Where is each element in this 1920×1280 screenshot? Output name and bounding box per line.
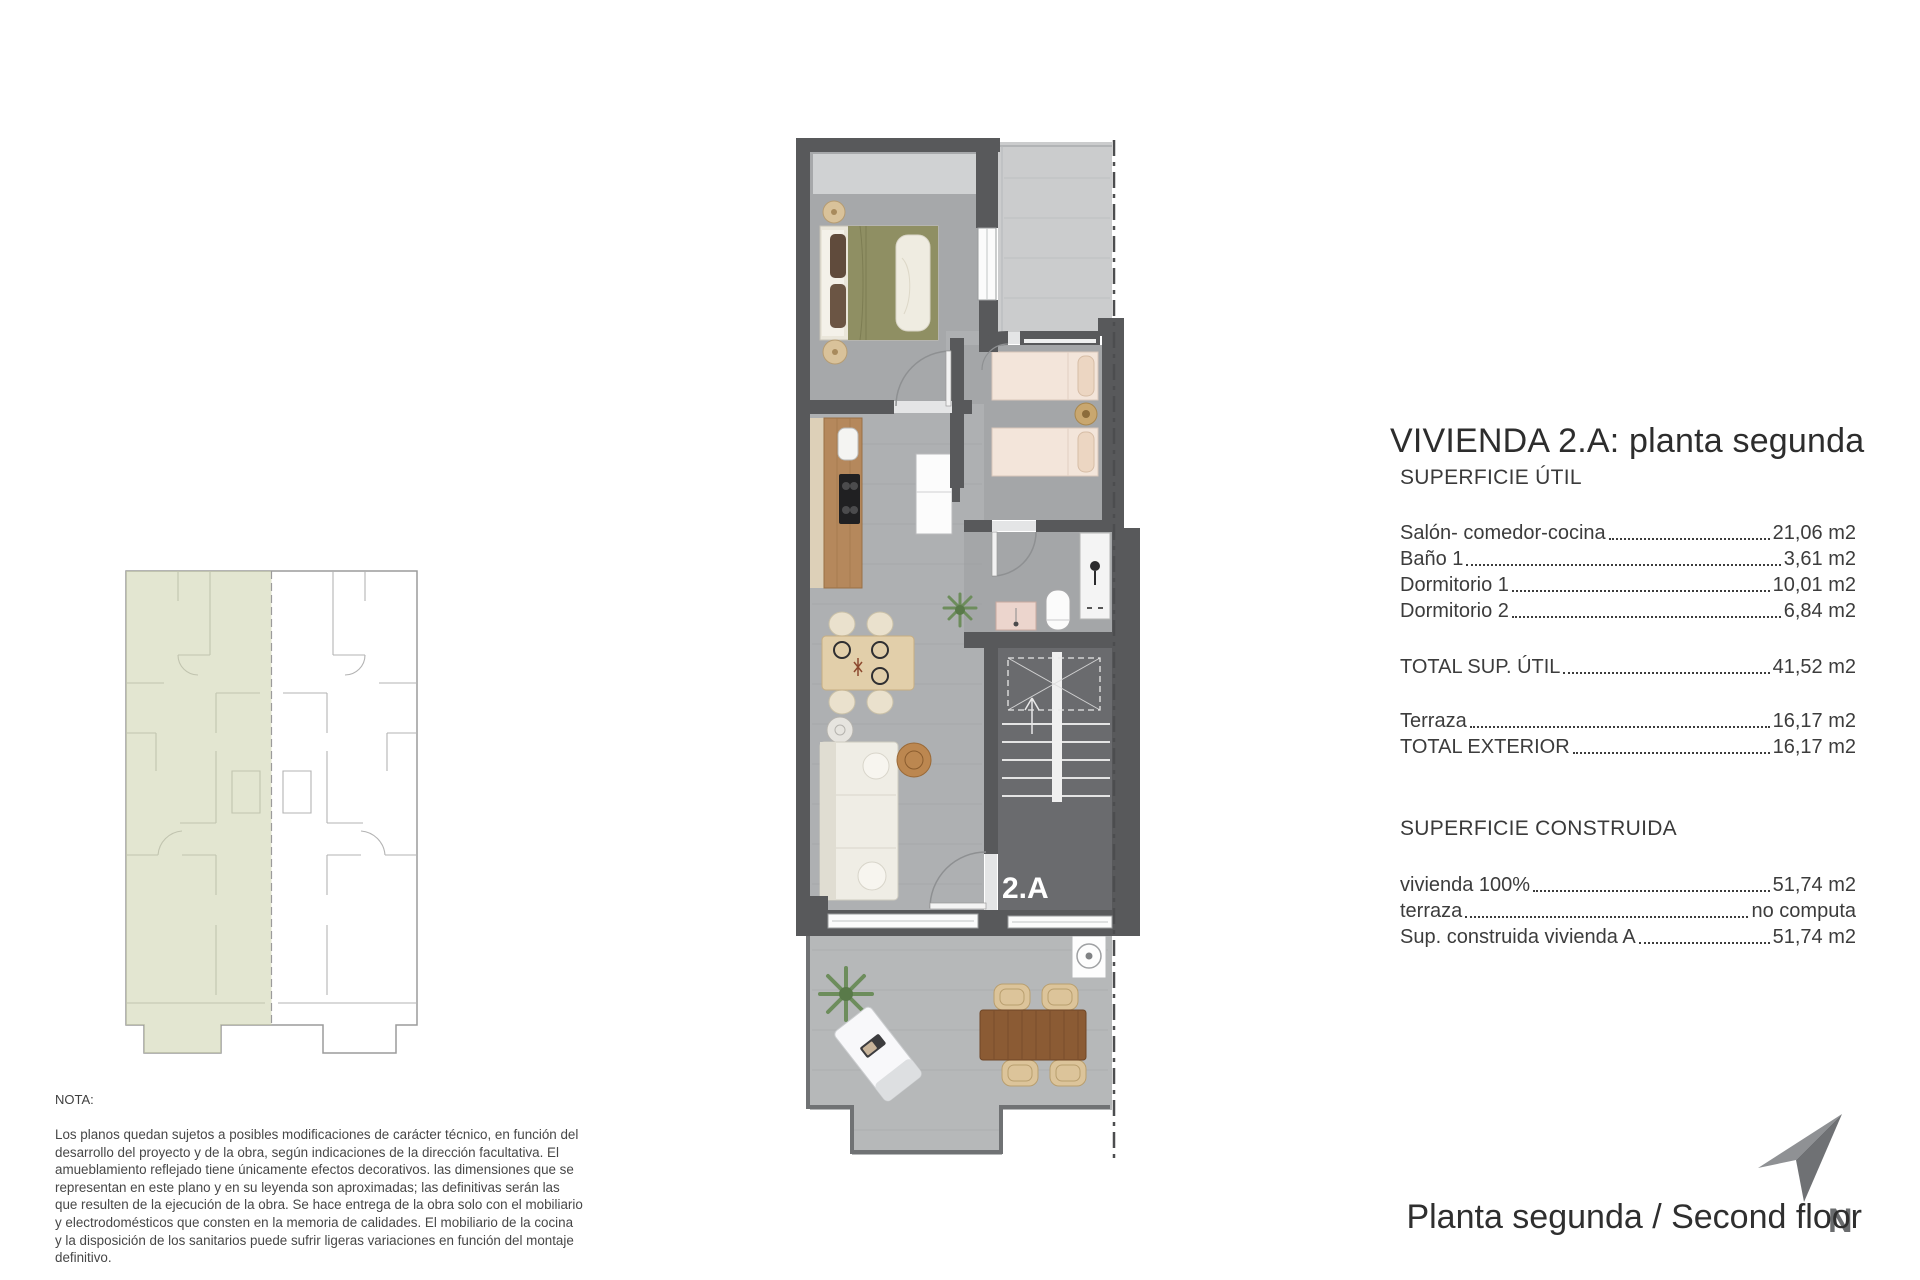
area-row-salon: Salón- comedor-cocina 21,06 m2 [1400,519,1856,545]
kitchen-counter [810,418,862,588]
area-row-value: 51,74 m2 [1773,874,1856,897]
area-row-label: Dormitorio 2 [1400,600,1509,623]
unit-label: 2.A [1002,872,1049,905]
dotted-leader [1465,916,1748,918]
area-row-label: Dormitorio 1 [1400,574,1509,597]
area-row-terraza-construida: terraza no computa [1400,897,1856,923]
area-row-value: no computa [1751,900,1856,923]
area-row-dormitorio1: Dormitorio 1 10,01 m2 [1400,571,1856,597]
area-row-label: Salón- comedor-cocina [1400,522,1606,545]
side-stool [827,717,853,743]
key-plan [120,565,425,1065]
floor-plan-sheet: NOTA: Los planos quedan sujetos a posibl… [0,0,1920,1280]
superficie-construida-rows: vivienda 100% 51,74 m2 terraza no comput… [1400,871,1856,949]
dotted-leader [1563,672,1769,674]
area-row-label: Sup. construida vivienda A [1400,926,1636,949]
area-row-value: 51,74 m2 [1773,926,1856,949]
area-row-label: TOTAL EXTERIOR [1400,736,1570,759]
coffee-table [897,743,931,777]
dotted-leader [1533,890,1770,892]
key-plan-highlight [126,571,272,1053]
terrace-fixture [1072,936,1106,978]
sofa [820,742,898,900]
area-row-dormitorio2: Dormitorio 2 6,84 m2 [1400,597,1856,623]
area-row-total-exterior: TOTAL EXTERIOR 16,17 m2 [1400,733,1856,759]
area-row-value: 3,61 m2 [1784,548,1856,571]
area-row-label: Baño 1 [1400,548,1463,571]
dotted-leader [1470,726,1770,728]
nota-heading: NOTA: [55,1092,94,1107]
dotted-leader [1639,942,1770,944]
superficie-util-heading: SUPERFICIE ÚTIL [1400,466,1582,490]
total-util-value: 41,52 m2 [1773,656,1856,679]
area-row-value: 16,17 m2 [1773,736,1856,759]
area-row-value: 16,17 m2 [1773,710,1856,733]
north-arrow-lower [1796,1114,1842,1202]
dormitorio1-bed [820,226,938,340]
area-row-value: 6,84 m2 [1784,600,1856,623]
dotted-leader [1512,616,1781,618]
total-util-label: TOTAL SUP. ÚTIL [1400,656,1560,679]
area-row-label: vivienda 100% [1400,874,1530,897]
area-row-label: Terraza [1400,710,1467,733]
nota-paragraph: Los planos quedan sujetos a posibles mod… [55,1126,583,1267]
dotted-leader [1609,538,1770,540]
page-title: VIVIENDA 2.A: planta segunda [1390,422,1870,461]
main-floor-plan: 2.A [796,138,1140,1172]
area-row-label: terraza [1400,900,1462,923]
area-row-sup-construida: Sup. construida vivienda A 51,74 m2 [1400,923,1856,949]
exterior-rows: Terraza 16,17 m2 TOTAL EXTERIOR 16,17 m2 [1400,707,1856,759]
area-row-vivienda100: vivienda 100% 51,74 m2 [1400,871,1856,897]
superficie-util-rows: Salón- comedor-cocina 21,06 m2 Baño 1 3,… [1400,519,1856,623]
area-row-value: 10,01 m2 [1773,574,1856,597]
sheet-caption: Planta segunda / Second floor [1390,1198,1862,1237]
superficie-construida-heading: SUPERFICIE CONSTRUIDA [1400,817,1677,841]
area-row-terraza: Terraza 16,17 m2 [1400,707,1856,733]
area-row-value: 21,06 m2 [1773,522,1856,545]
dotted-leader [1573,752,1770,754]
dotted-leader [1466,564,1780,566]
total-util-row: TOTAL SUP. ÚTIL 41,52 m2 [1400,653,1856,679]
area-row-bano1: Baño 1 3,61 m2 [1400,545,1856,571]
dotted-leader [1512,590,1770,592]
